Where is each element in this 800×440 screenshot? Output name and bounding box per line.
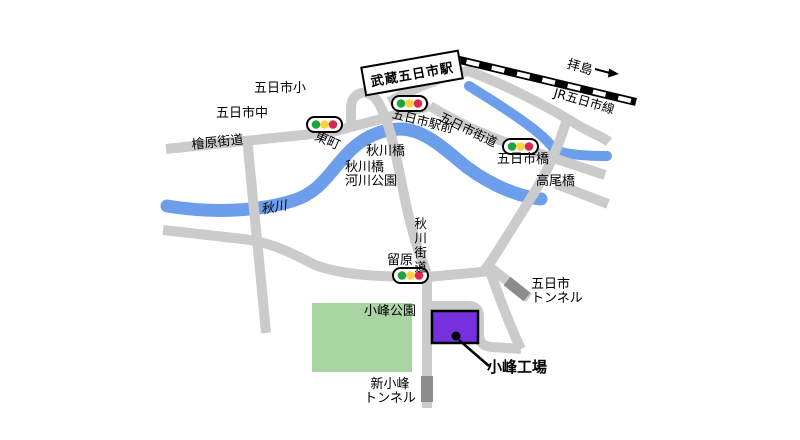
label-elementary-school: 五日市小	[254, 82, 306, 96]
label-kasen-koen: 秋川橋 河川公園	[345, 161, 397, 188]
label-akigawa-bashi: 秋川橋	[366, 145, 405, 159]
arrow-east-icon	[595, 69, 619, 78]
label-shin-komine-tunnel: 新小峰 トンネル	[364, 378, 416, 405]
itsukaichi-tunnel-segment	[507, 281, 527, 297]
label-itsukaichi-tunnel: 五日市 トンネル	[531, 278, 583, 305]
label-shin-komine-tunnel-line2: トンネル	[364, 391, 416, 406]
label-tomehara: 留原	[387, 254, 413, 268]
label-itsukaichi-tunnel-line2: トンネル	[531, 291, 583, 306]
label-itsukaichi-bashi: 五日市橋	[497, 153, 549, 167]
label-komine-park: 小峰公園	[364, 305, 416, 319]
road-tomehara	[163, 230, 492, 277]
label-takao-bashi: 高尾橋	[536, 175, 575, 189]
traffic-light-icon-azumacho	[307, 117, 342, 132]
label-komine-factory: 小峰工場	[487, 360, 547, 376]
label-junior-high-school: 五日市中	[216, 107, 268, 121]
route-map: 武蔵五日市駅 五日市小 五日市中 檜原街道 東町 五日市駅前 五日市街道 五日市…	[0, 0, 800, 440]
label-kasen-koen-line2: 河川公園	[345, 174, 397, 189]
label-akigawa-kaido: 秋川街道	[413, 217, 426, 275]
